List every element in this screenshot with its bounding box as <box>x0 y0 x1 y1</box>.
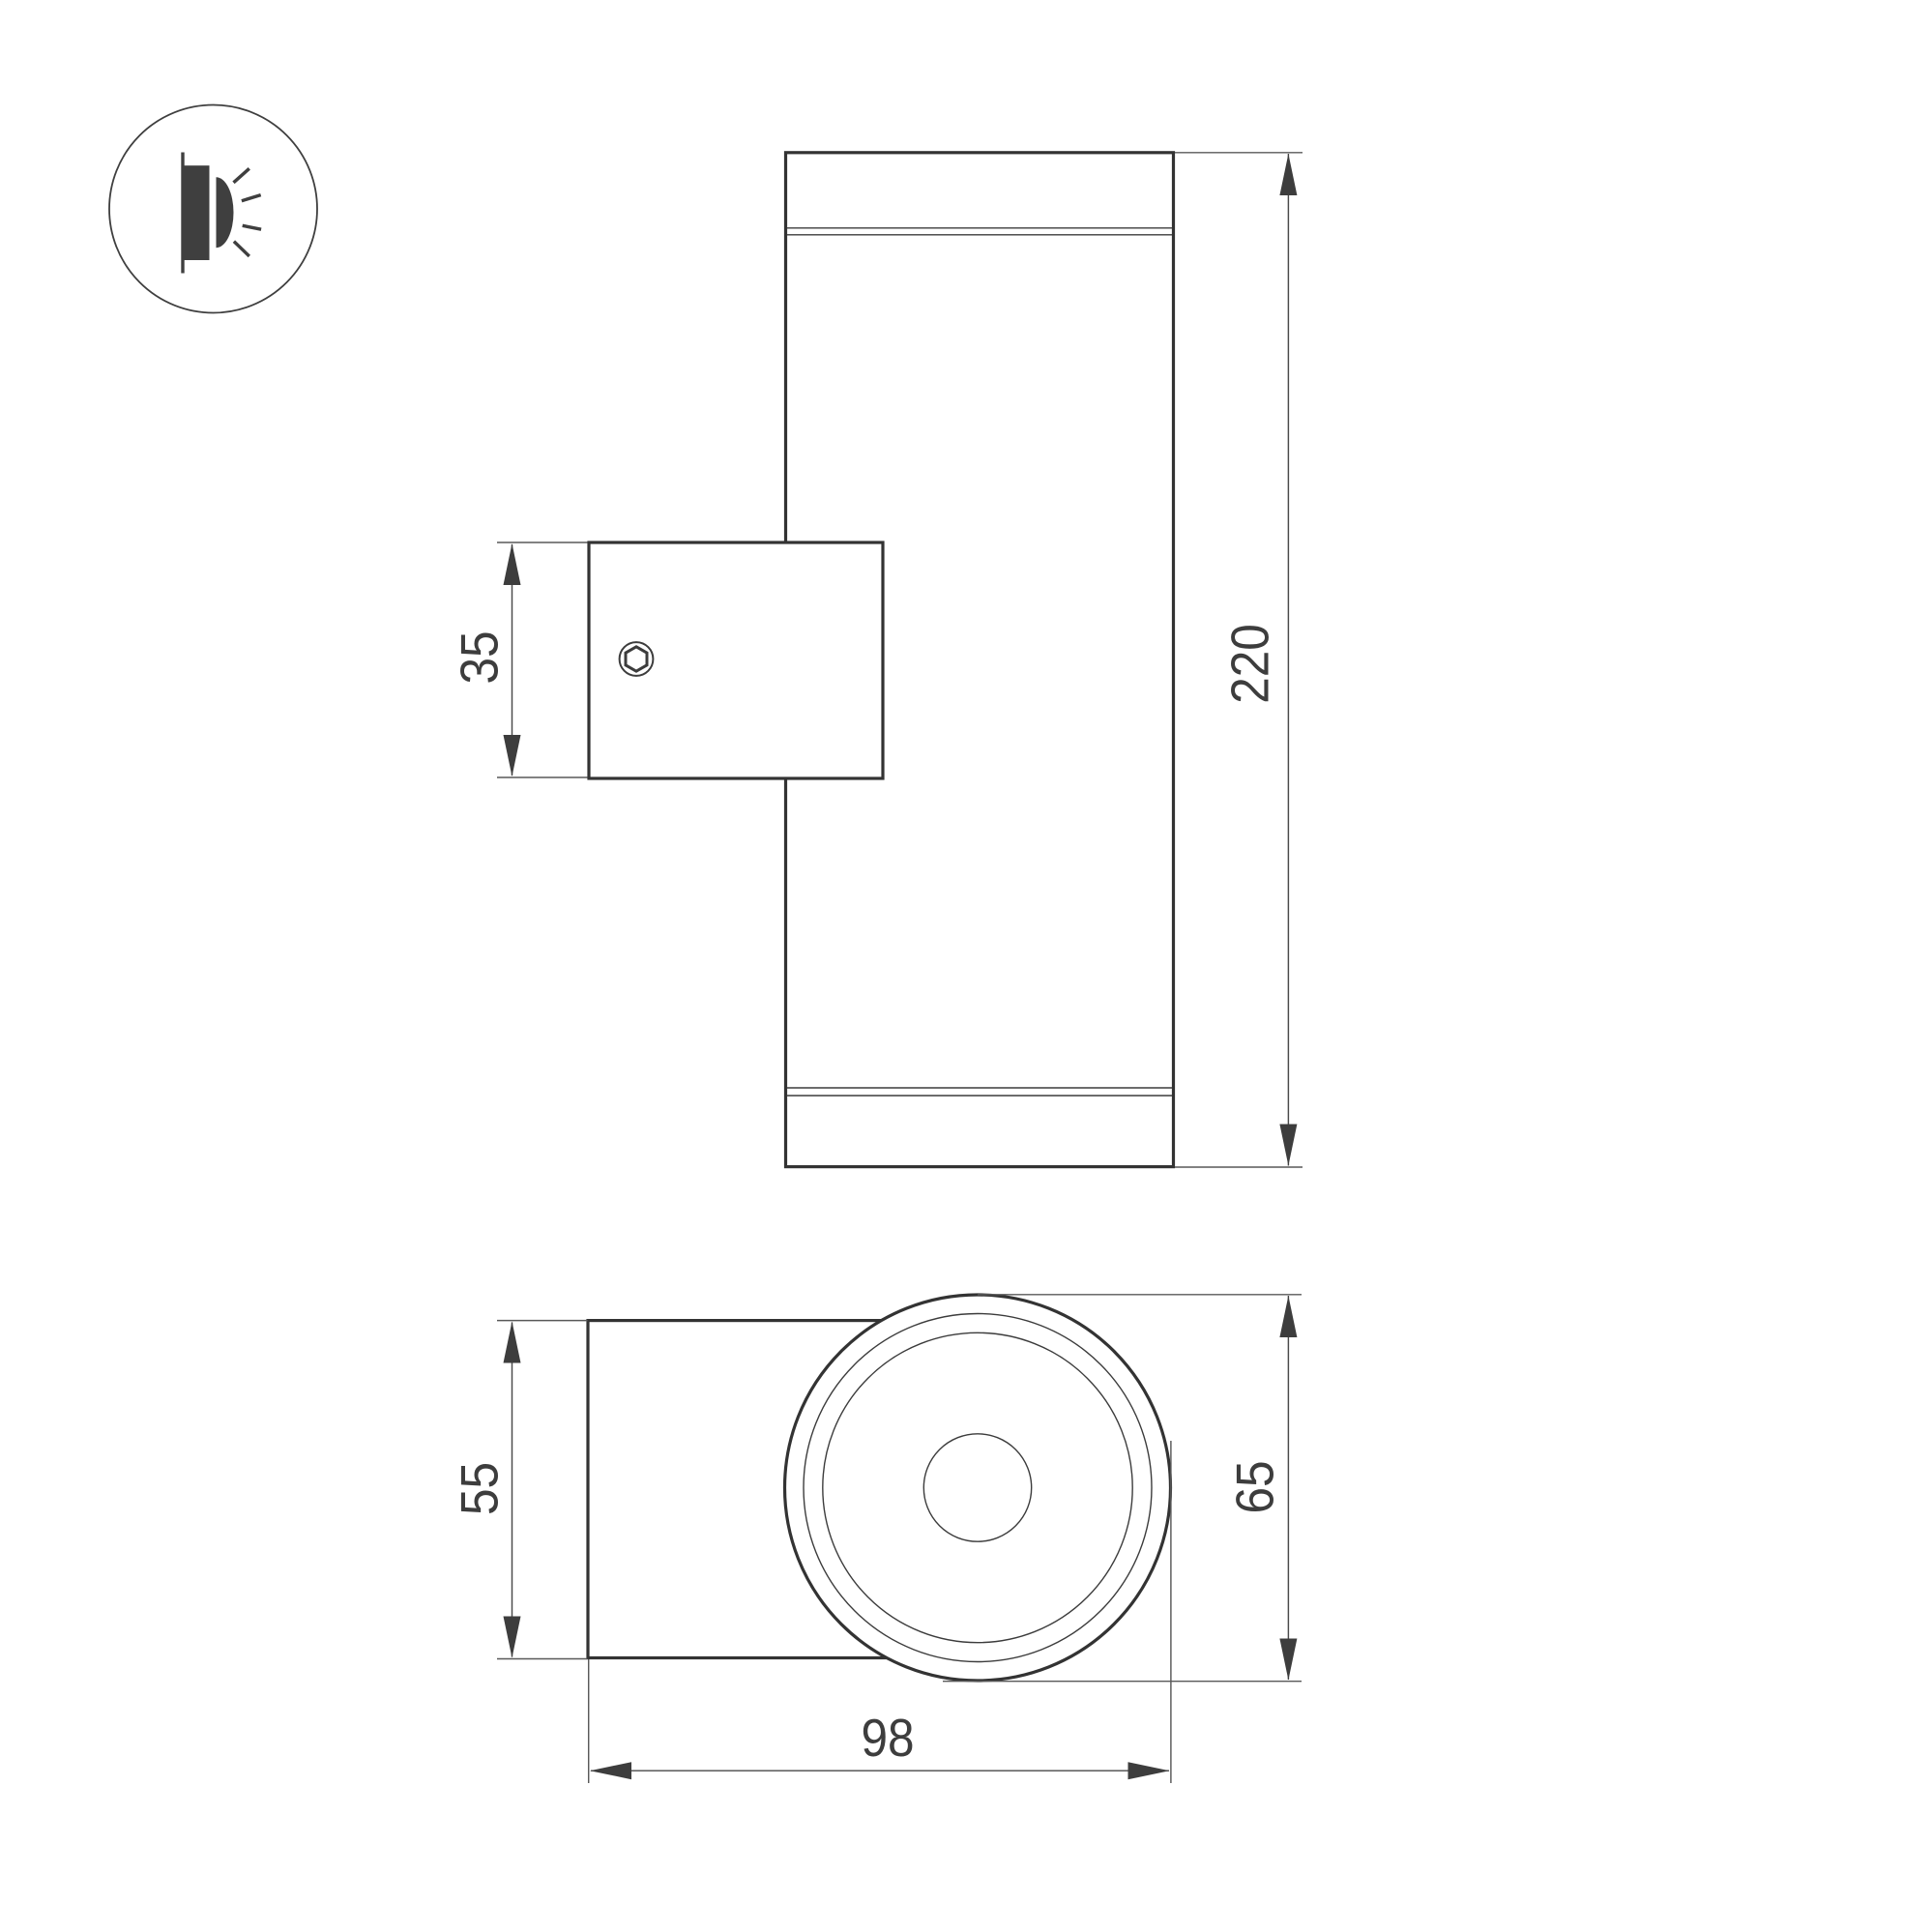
svg-text:55: 55 <box>451 1462 510 1515</box>
svg-text:65: 65 <box>1226 1460 1285 1513</box>
svg-text:98: 98 <box>861 1710 914 1769</box>
svg-text:35: 35 <box>451 630 510 684</box>
svg-text:220: 220 <box>1221 624 1280 704</box>
